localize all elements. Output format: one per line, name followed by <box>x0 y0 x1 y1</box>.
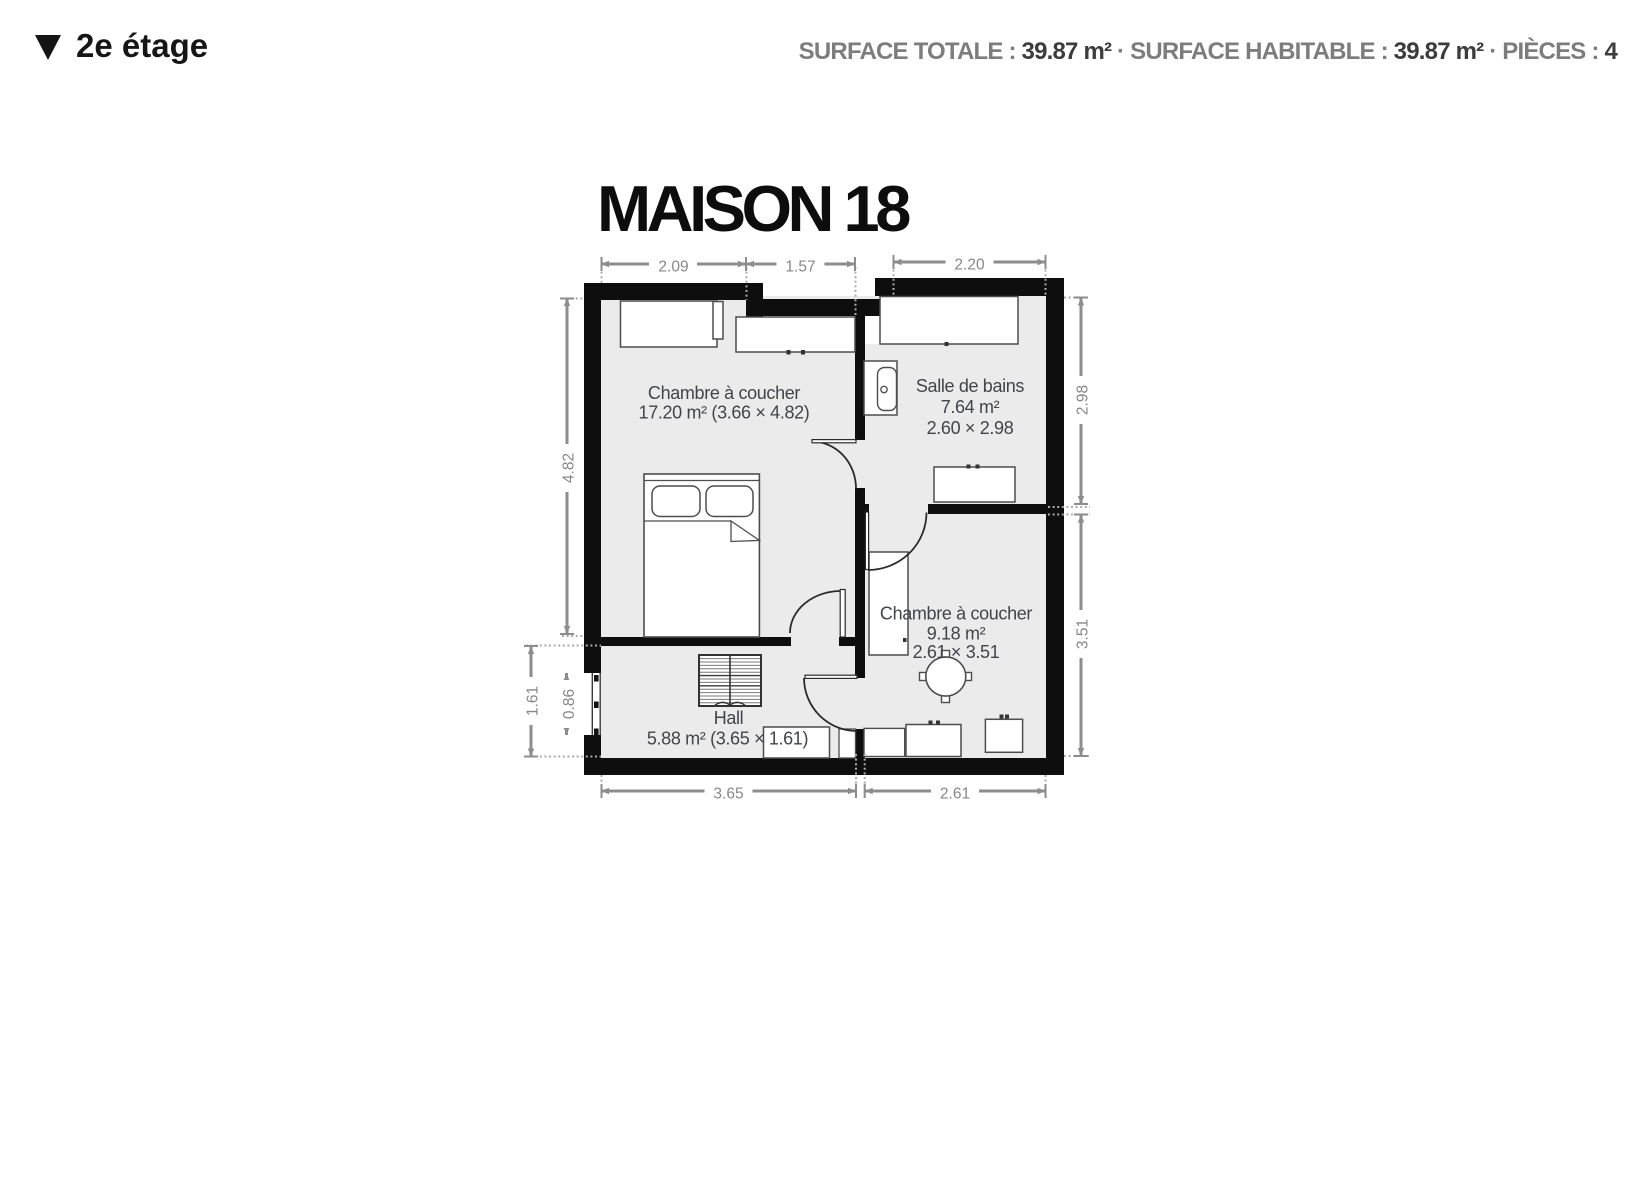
svg-text:2.20: 2.20 <box>954 257 985 274</box>
svg-text:Salle de bains: Salle de bains <box>916 376 1025 396</box>
svg-text:2.09: 2.09 <box>658 259 688 276</box>
svg-text:Chambre à coucher: Chambre à coucher <box>880 604 1032 624</box>
svg-text:17.20 m² (3.66 × 4.82): 17.20 m² (3.66 × 4.82) <box>639 403 810 423</box>
svg-text:1.57: 1.57 <box>785 259 815 276</box>
svg-text:3.65: 3.65 <box>713 786 743 803</box>
svg-text:2.98: 2.98 <box>1075 385 1092 415</box>
svg-text:0.86: 0.86 <box>561 689 578 719</box>
svg-text:1.61: 1.61 <box>525 686 542 716</box>
svg-text:Hall: Hall <box>714 708 744 728</box>
svg-text:2.60 × 2.98: 2.60 × 2.98 <box>927 418 1014 438</box>
svg-text:2.61 × 3.51: 2.61 × 3.51 <box>913 642 1000 662</box>
svg-text:Chambre à coucher: Chambre à coucher <box>648 383 800 403</box>
svg-text:5.88 m² (3.65 × 1.61): 5.88 m² (3.65 × 1.61) <box>647 729 808 749</box>
svg-text:2.61: 2.61 <box>940 786 970 803</box>
svg-text:SURFACE TOTALE : 39.87 m² · SU: SURFACE TOTALE : 39.87 m² · SURFACE HABI… <box>799 37 1619 65</box>
svg-text:9.18 m²: 9.18 m² <box>927 624 986 644</box>
svg-text:MAISON 18: MAISON 18 <box>597 172 910 245</box>
svg-text:4.82: 4.82 <box>561 453 578 483</box>
svg-text:3.51: 3.51 <box>1075 619 1092 649</box>
svg-text:2e étage: 2e étage <box>76 27 208 64</box>
svg-text:7.64 m²: 7.64 m² <box>941 397 1000 417</box>
